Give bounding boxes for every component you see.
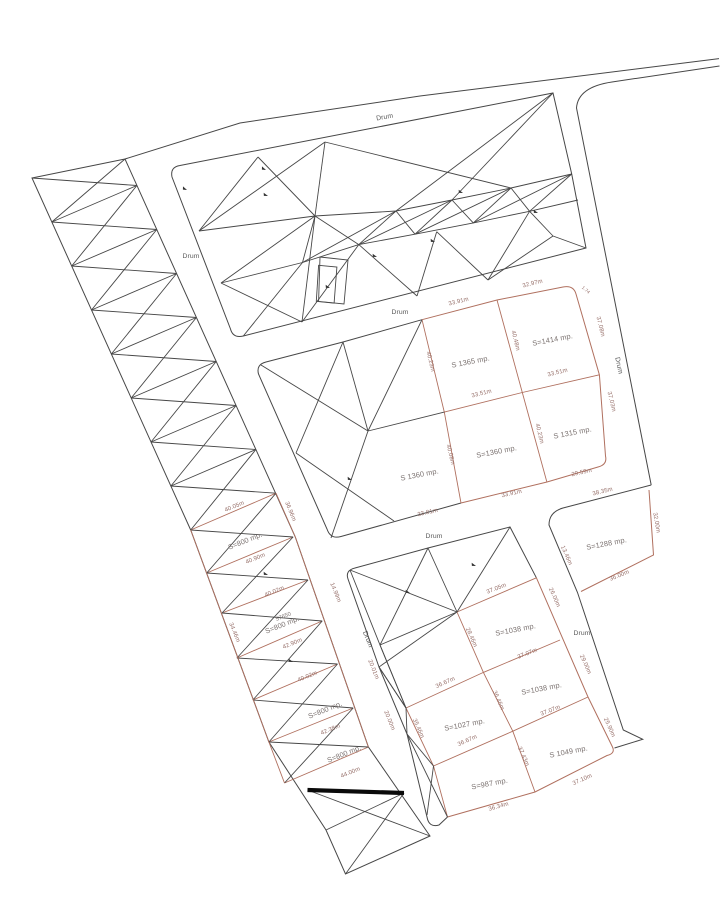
svg-text:29.59m: 29.59m (571, 468, 592, 478)
svg-text:S 1315 mp.: S 1315 mp. (553, 424, 593, 440)
svg-text:Drum: Drum (425, 533, 442, 540)
svg-text:44.00m: 44.00m (340, 766, 361, 779)
svg-text:S=1027 mp.: S=1027 mp. (444, 716, 486, 733)
svg-text:32.97m: 32.97m (522, 279, 543, 290)
svg-text:Drum: Drum (391, 309, 408, 316)
svg-text:Drum: Drum (613, 357, 623, 375)
svg-text:26.00m: 26.00m (547, 587, 561, 608)
svg-text:S=1038 mp.: S=1038 mp. (495, 621, 537, 638)
svg-text:40.08m: 40.08m (445, 444, 456, 465)
svg-text:36.67m: 36.67m (435, 676, 456, 690)
svg-text:37.03m: 37.03m (606, 391, 617, 412)
svg-text:36.96m: 36.96m (283, 501, 296, 522)
svg-text:34.46m: 34.46m (227, 622, 240, 643)
svg-text:S=987 mp.: S=987 mp. (471, 776, 509, 792)
svg-text:33.51m: 33.51m (547, 368, 568, 379)
svg-text:37.05m: 37.05m (486, 583, 507, 596)
svg-text:S 1365 mp.: S 1365 mp. (451, 353, 491, 369)
svg-text:Drum: Drum (573, 630, 590, 637)
svg-text:S 1360 mp.: S 1360 mp. (400, 466, 440, 482)
svg-text:36.46m: 36.46m (491, 690, 505, 711)
svg-text:32.00m: 32.00m (651, 512, 660, 533)
svg-text:40.02m: 40.02m (264, 585, 285, 598)
svg-text:35.46m: 35.46m (411, 718, 425, 739)
svg-text:33.51m: 33.51m (471, 389, 492, 400)
svg-text:13.46m: 13.46m (559, 545, 573, 566)
svg-text:29.00m: 29.00m (578, 654, 592, 675)
svg-text:40.02m: 40.02m (297, 670, 318, 683)
svg-text:Drum: Drum (376, 113, 394, 123)
svg-text:36.00m: 36.00m (609, 569, 630, 582)
svg-text:33.81m: 33.81m (417, 508, 438, 518)
svg-text:S 1049 mp.: S 1049 mp. (549, 743, 589, 759)
svg-text:25.90m: 25.90m (602, 717, 616, 738)
svg-text:40.90m: 40.90m (245, 552, 266, 565)
svg-text:S=1038 mp.: S=1038 mp. (521, 680, 563, 697)
svg-text:S=1414 mp.: S=1414 mp. (532, 331, 574, 348)
svg-text:1.74: 1.74 (581, 285, 592, 295)
svg-text:33.91m: 33.91m (448, 297, 469, 308)
svg-text:S=1360 mp.: S=1360 mp. (476, 443, 518, 460)
svg-text:40.05m: 40.05m (224, 500, 245, 513)
svg-text:40.23m: 40.23m (534, 423, 545, 444)
svg-text:37.08m: 37.08m (595, 316, 606, 337)
svg-text:28.46m: 28.46m (464, 627, 478, 648)
svg-text:37.07m: 37.07m (517, 648, 538, 661)
svg-text:37.43m: 37.43m (516, 746, 530, 767)
svg-text:40.48m: 40.48m (510, 330, 521, 351)
svg-text:S=1288 mp.: S=1288 mp. (586, 535, 628, 552)
svg-text:42.90m: 42.90m (282, 637, 303, 650)
svg-text:S=800 mp.: S=800 mp. (307, 699, 344, 721)
svg-text:40.23m: 40.23m (425, 351, 436, 372)
svg-text:36.34m: 36.34m (488, 801, 509, 812)
svg-text:37.10m: 37.10m (572, 773, 593, 787)
svg-text:36.67m: 36.67m (457, 734, 478, 748)
svg-text:37.07m: 37.07m (540, 705, 561, 718)
svg-text:14.99m: 14.99m (328, 582, 341, 603)
svg-text:33.91m: 33.91m (501, 489, 522, 499)
svg-text:Drum: Drum (182, 253, 199, 260)
svg-text:42.38m: 42.38m (320, 723, 341, 736)
svg-text:20.00m: 20.00m (382, 710, 395, 731)
